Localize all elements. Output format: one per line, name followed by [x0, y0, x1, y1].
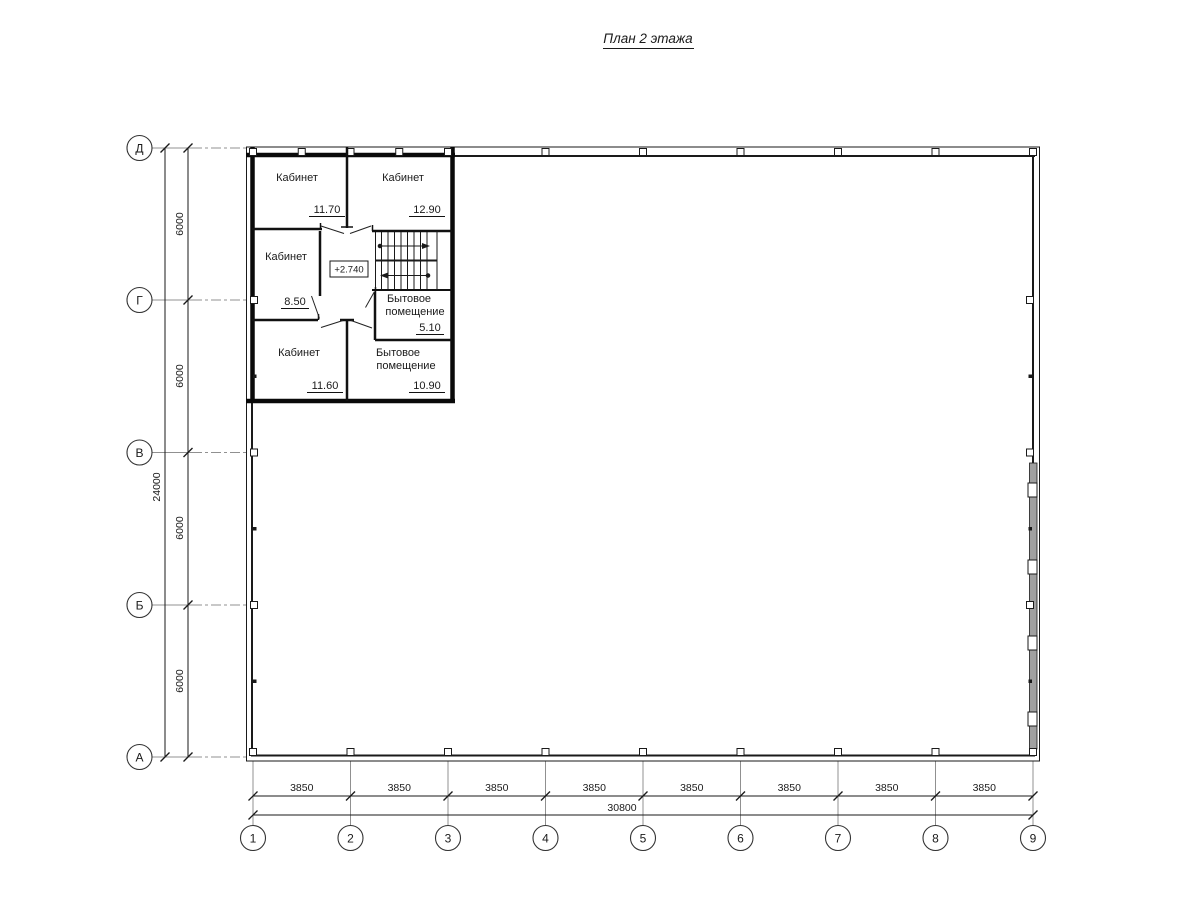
stair-arrow-down: [380, 273, 430, 279]
room-area: 11.70: [314, 204, 341, 216]
room-name-line1: Бытовое: [376, 347, 420, 359]
dim-segment: 3850: [583, 782, 607, 794]
dim-total-left: 24000: [151, 472, 163, 501]
door-swing-top-left: [321, 226, 344, 234]
mid-span-marks: [253, 375, 1032, 684]
axis-col-label: 9: [1030, 832, 1037, 846]
door-swing-bottom-left: [321, 321, 343, 328]
room-area: 5.10: [419, 322, 440, 334]
axis-col-label: 1: [250, 832, 257, 846]
column-marks-bottom: [250, 749, 1037, 756]
dim-segment: 6000: [174, 212, 186, 236]
page-title: План 2 этажа: [603, 31, 693, 46]
axis-row-label: Б: [136, 599, 144, 613]
room-name: Кабинет: [278, 347, 320, 359]
dim-segment: 3850: [388, 782, 412, 794]
dim-segment: 3850: [680, 782, 704, 794]
axis-row-label: А: [135, 751, 143, 765]
dim-segment: 3850: [485, 782, 509, 794]
room-name-line2: помещение: [385, 306, 444, 318]
drawing-sheet: План 2 этажа: [0, 0, 1200, 900]
room-name: Кабинет: [265, 251, 307, 263]
axis-col-label: 2: [347, 832, 354, 846]
door-leaf-cab3: [312, 296, 320, 319]
room-cab3: Кабинет 8.50: [265, 251, 309, 309]
room-labels: Кабинет 11.70 Кабинет 12.90 Кабинет 8.50…: [265, 172, 445, 393]
room-name: Кабинет: [276, 172, 318, 184]
axis-col-label: 4: [542, 832, 549, 846]
axis-row-label: Д: [135, 142, 143, 156]
level-mark: +2.740: [330, 261, 368, 277]
room-name-line1: Бытовое: [387, 293, 431, 305]
axis-row-label: В: [135, 446, 143, 460]
dim-segment: 6000: [174, 364, 186, 388]
floor-plan-svg: План 2 этажа: [0, 0, 1200, 900]
room-name-line2: помещение: [376, 360, 435, 372]
building-envelope: [246, 147, 1040, 761]
room-area: 12.90: [413, 204, 441, 216]
axis-col-label: 5: [640, 832, 647, 846]
drawing-title: План 2 этажа: [603, 31, 694, 49]
room-area: 11.60: [312, 380, 339, 392]
dim-segment: 3850: [973, 782, 997, 794]
axis-col-label: 7: [835, 832, 842, 846]
room-util2: Бытовое помещение 10.90: [376, 347, 445, 393]
level-mark-value: +2.740: [334, 265, 363, 276]
axis-col-label: 8: [932, 832, 939, 846]
axis-lines: [152, 148, 1033, 825]
axis-row-label: Г: [136, 294, 143, 308]
axis-col-label: 3: [445, 832, 452, 846]
dim-segment: 6000: [174, 669, 186, 693]
door-swing-top-right: [350, 226, 371, 234]
room-area: 10.90: [413, 380, 441, 392]
axis-bubbles-cols: 1 2 3 4 5 6 7 8 9: [241, 826, 1046, 851]
room-cab2: Кабинет 12.90: [382, 172, 445, 217]
room-name: Кабинет: [382, 172, 424, 184]
room-cab4: Кабинет 11.60: [278, 347, 343, 393]
room-util1: Бытовое помещение 5.10: [385, 293, 444, 335]
door-leaf-util1: [366, 292, 375, 308]
door-swing-bottom-right: [351, 321, 372, 329]
room-area: 8.50: [284, 296, 305, 308]
column-marks-sides: [251, 297, 1038, 727]
dim-segment: 3850: [290, 782, 314, 794]
dim-total-bottom: 30800: [607, 802, 636, 814]
staircase: [375, 231, 437, 290]
stair-arrow-up: [378, 243, 430, 249]
axis-col-label: 6: [737, 832, 744, 846]
dim-segment: 3850: [875, 782, 899, 794]
dim-segment: 6000: [174, 516, 186, 540]
dim-segment: 3850: [778, 782, 802, 794]
room-cab1: Кабинет 11.70: [276, 172, 345, 217]
axis-bubbles-rows: Д Г В Б А: [127, 136, 152, 770]
